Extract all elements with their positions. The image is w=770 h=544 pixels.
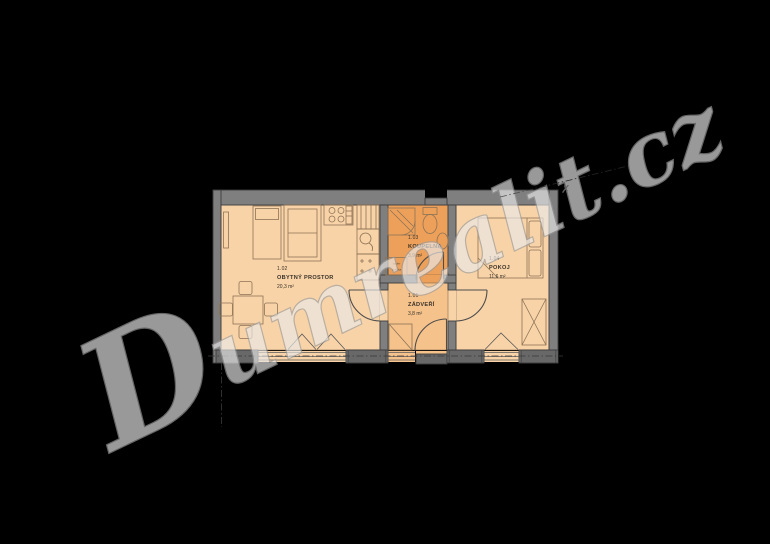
floor-plan: bojler pračka <box>0 0 770 544</box>
pier-2 <box>348 350 386 363</box>
watermark-text: Dumrealit.cz <box>48 28 750 486</box>
pier-3 <box>449 350 482 363</box>
wall-hall-bedroom-lower <box>448 321 456 350</box>
page-background: bojler pračka <box>0 0 770 544</box>
pier-4 <box>521 350 556 363</box>
entry-threshold <box>416 354 447 364</box>
watermark: Dumrealit.cz ✗ <box>48 28 750 486</box>
watermark-cross-icon: ✗ <box>561 184 570 196</box>
